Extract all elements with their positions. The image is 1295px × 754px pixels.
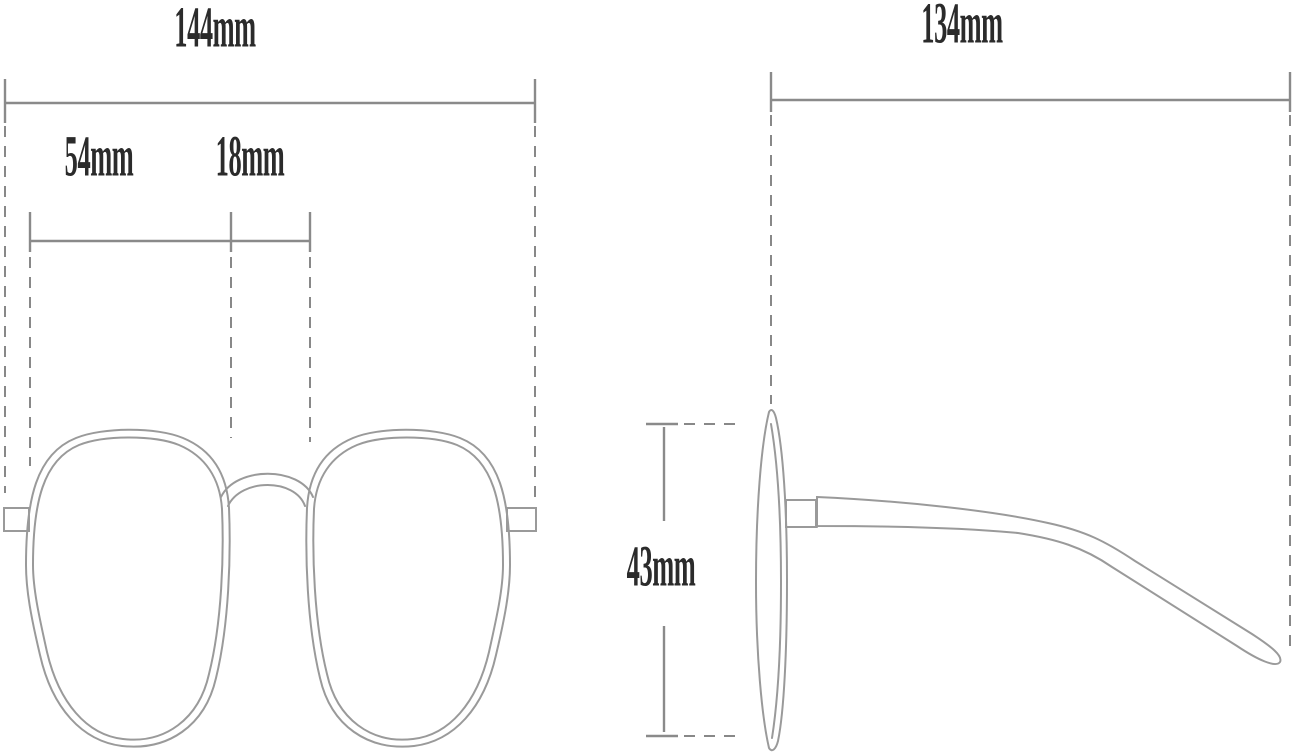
right-hinge-tab: [507, 508, 536, 531]
lens-width-label: 54mm: [65, 125, 134, 191]
side-lens-profile-outline: [756, 410, 787, 750]
temple-arm-outline: [817, 497, 1280, 664]
side-view-extension-lines: [684, 115, 1290, 736]
lens-height-label: 43mm: [627, 535, 696, 601]
total-width-label: 144mm: [174, 0, 255, 62]
bridge-lower-line: [228, 485, 305, 506]
right-lens-inner-rim: [313, 438, 503, 740]
side-view: [756, 410, 1280, 750]
glasses-technical-drawing-svg: [0, 0, 1295, 754]
side-view-dimension-lines: [646, 72, 1290, 736]
side-lens-profile-bevel-line: [771, 424, 781, 738]
right-lens: [306, 430, 510, 747]
left-hinge-tab: [4, 508, 29, 531]
temple-length-label: 134mm: [921, 0, 1002, 58]
front-view: [4, 430, 536, 747]
bridge-width-label: 18mm: [216, 125, 285, 191]
left-lens-inner-rim: [33, 438, 223, 740]
side-hinge-block: [786, 500, 816, 527]
eyeglasses-dimension-diagram: 144mm 54mm 18mm 134mm 43mm: [0, 0, 1295, 754]
